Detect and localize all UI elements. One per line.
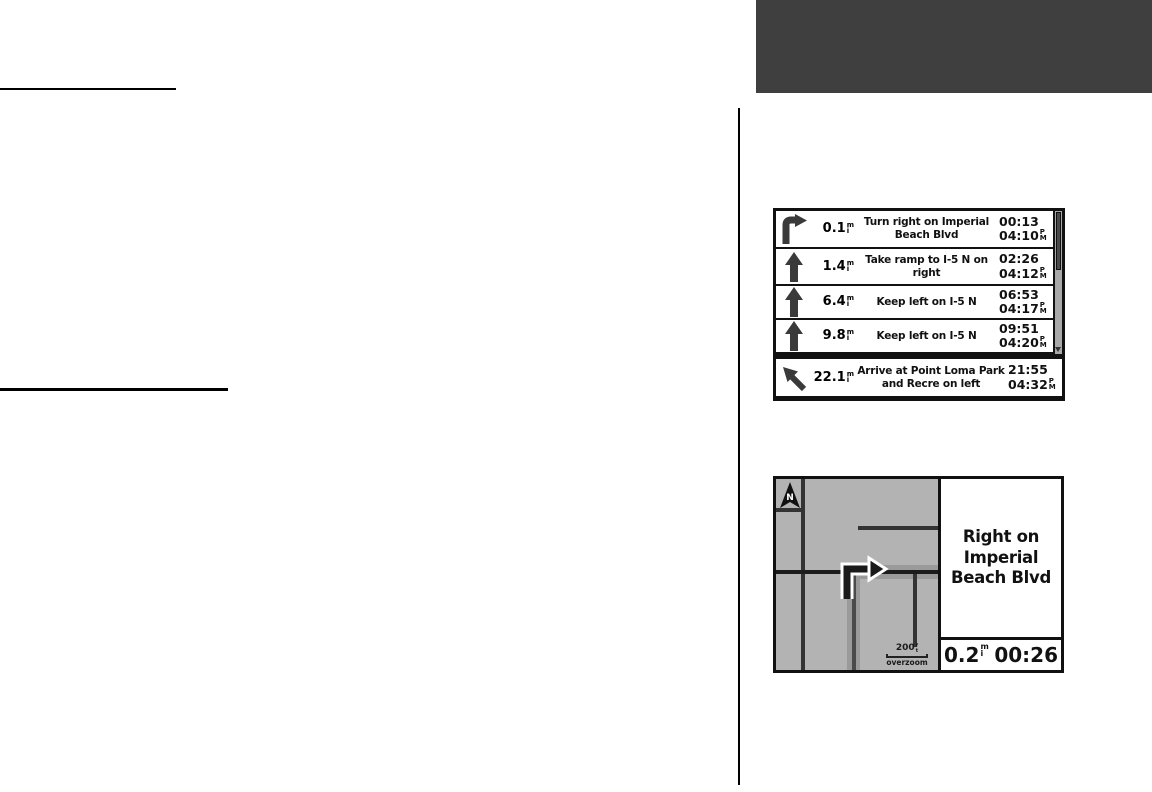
north-arrow-icon: N — [779, 482, 801, 509]
turn-times: 09:51 04:20PM — [999, 322, 1051, 351]
turn-instruction: Turn right on Imperial Beach Blvd — [854, 216, 999, 241]
time-to-turn: 00:13 — [999, 215, 1051, 229]
turn-times: 21:55 04:32PM — [1008, 363, 1060, 392]
turn-instruction: Keep left on I-5 N — [854, 296, 999, 309]
time-to-turn: 09:51 — [999, 322, 1051, 336]
turn-list-screen: 0.1mi Turn right on Imperial Beach Blvd … — [773, 208, 1065, 401]
time-to-turn: 06:53 — [999, 288, 1051, 302]
eta-clock: 04:10 — [999, 229, 1039, 243]
time-to-turn: 02:26 — [999, 252, 1051, 266]
straight-icon — [776, 252, 812, 282]
eta-clock: 04:17 — [999, 302, 1039, 316]
svg-text:N: N — [786, 493, 794, 503]
eta-clock: 04:20 — [999, 336, 1039, 350]
next-turn-arrow-icon — [839, 553, 891, 601]
next-turn-instruction: Right on Imperial Beach Blvd — [941, 479, 1061, 637]
turn-list-row: 0.1mi Turn right on Imperial Beach Blvd … — [776, 211, 1062, 249]
page-header-block — [756, 0, 1152, 93]
time-to-turn: 21:55 — [1008, 363, 1060, 377]
turn-list-row: 6.4mi Keep left on I-5 N 06:53 04:17PM — [776, 286, 1062, 320]
turn-distance: 0.1mi — [812, 222, 854, 236]
next-turn-data-bar: 0.2mi 00:26 — [941, 637, 1061, 670]
distance-to-turn: 0.2mi — [944, 643, 989, 667]
turn-instruction: Keep left on I-5 N — [854, 330, 999, 343]
straight-icon — [776, 287, 812, 317]
turn-instruction: Take ramp to I-5 N on right — [854, 254, 999, 279]
turn-list-row: 1.4mi Take ramp to I-5 N on right 02:26 … — [776, 249, 1062, 286]
arrive-left-icon — [776, 364, 812, 392]
turn-times: 02:26 04:12PM — [999, 252, 1051, 281]
turn-right-icon — [776, 214, 812, 244]
scale-label: 200ft — [896, 644, 918, 653]
eta-clock: 04:12 — [999, 267, 1039, 281]
road-horizontal-upper-right — [858, 526, 938, 530]
turn-list-rows: 0.1mi Turn right on Imperial Beach Blvd … — [776, 211, 1062, 396]
list-scrollbar[interactable] — [1053, 211, 1062, 354]
turn-distance: 22.1mi — [812, 371, 854, 385]
eta-clock: 04:32 — [1008, 378, 1048, 392]
straight-icon — [776, 321, 812, 351]
map-scale: 200ft overzoom — [879, 635, 935, 667]
overzoom-label: overzoom — [879, 658, 935, 667]
map-screen: N 200ft overzoom Right on Imperial Beach… — [773, 476, 1064, 673]
middle-rule-line — [0, 388, 228, 391]
top-rule-line — [0, 88, 176, 90]
turn-times: 00:13 04:10PM — [999, 215, 1051, 244]
map-area: N 200ft overzoom — [776, 479, 938, 670]
turn-list-row: 9.8mi Keep left on I-5 N 09:51 04:20PM — [776, 320, 1062, 354]
turn-distance: 9.8mi — [812, 329, 854, 343]
turn-times: 06:53 04:17PM — [999, 288, 1051, 317]
time-to-turn: 00:26 — [994, 643, 1058, 667]
turn-distance: 6.4mi — [812, 295, 854, 309]
next-turn-panel: Right on Imperial Beach Blvd 0.2mi 00:26 — [938, 479, 1061, 670]
turn-distance: 1.4mi — [812, 260, 854, 274]
scroll-down-arrow-icon[interactable] — [1055, 347, 1061, 352]
vertical-divider-line — [738, 108, 740, 785]
turn-instruction: Arrive at Point Loma Park and Recre on l… — [854, 365, 1008, 390]
turn-list-row: 22.1mi Arrive at Point Loma Park and Rec… — [776, 359, 1062, 396]
scrollbar-thumb[interactable] — [1056, 212, 1061, 270]
